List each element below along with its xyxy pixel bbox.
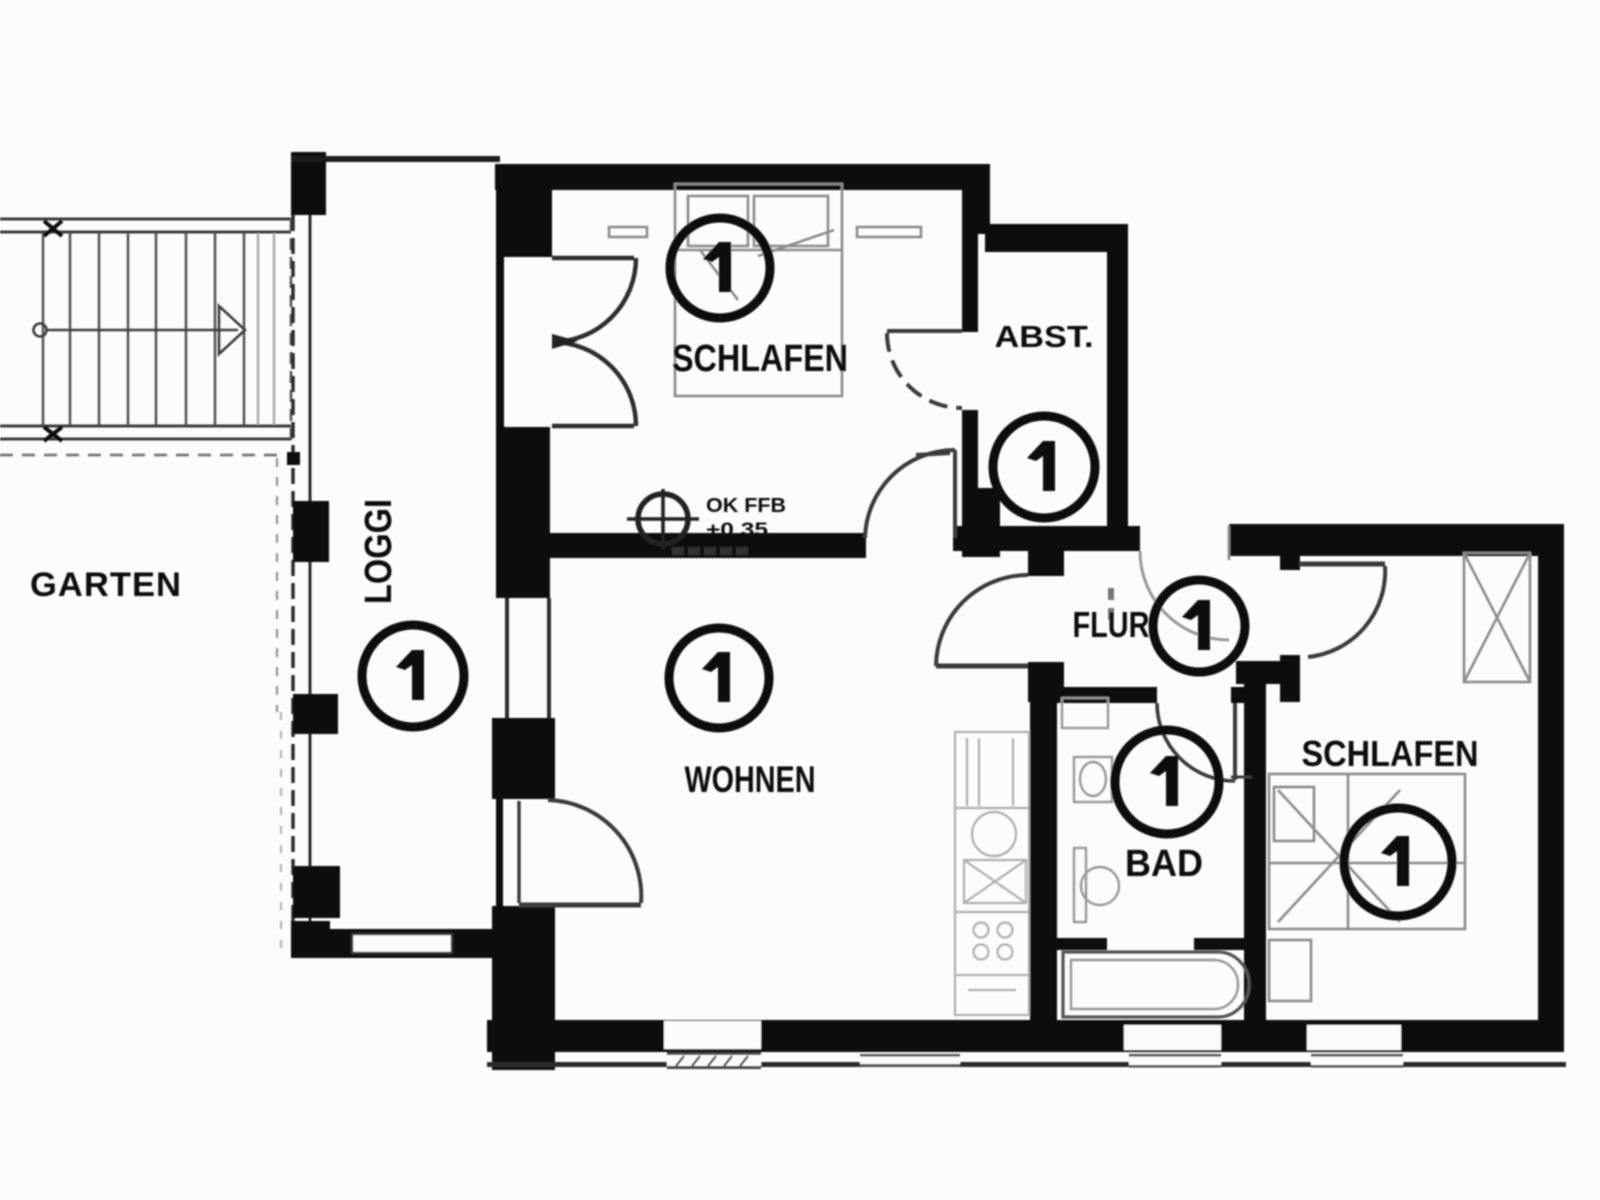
svg-text:BAD: BAD (1125, 843, 1203, 885)
svg-text:SCHLAFEN: SCHLAFEN (1302, 733, 1479, 774)
svg-text:GARTEN: GARTEN (30, 566, 182, 604)
svg-text:FLUR: FLUR (1073, 604, 1150, 645)
svg-text:ABST.: ABST. (995, 319, 1094, 354)
svg-text:SCHLAFEN: SCHLAFEN (672, 338, 848, 380)
svg-text:+0,35: +0,35 (706, 520, 769, 541)
svg-text:OK FFB: OK FFB (706, 495, 786, 517)
svg-text:LOGGI: LOGGI (358, 499, 400, 604)
svg-text:WOHNEN: WOHNEN (685, 759, 816, 800)
